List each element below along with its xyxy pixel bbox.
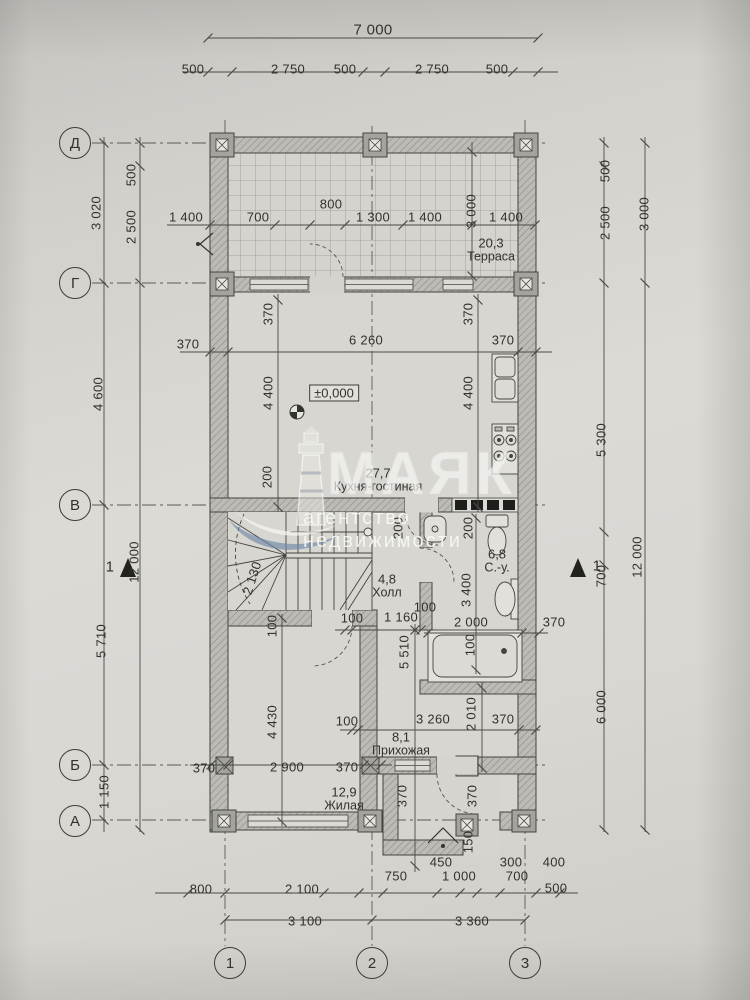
room-name: Жилая — [324, 799, 364, 812]
dim-label: 370 — [461, 303, 476, 326]
dim-label: 6 000 — [594, 690, 609, 724]
room-name: Прихожая — [372, 744, 430, 757]
dim-label: 400 — [543, 855, 566, 870]
floor-plan-photo: 7 0005002 7505002 7505003 0205002 5004 6… — [0, 0, 750, 1000]
dim-label: 370 — [395, 785, 410, 808]
room-area: 20,3 — [467, 237, 515, 251]
dim-label: 100 — [336, 714, 359, 729]
axis-circle-3: 3 — [509, 947, 541, 979]
dim-label: 200 — [260, 466, 275, 489]
axis-circle-А: А — [59, 805, 91, 837]
room-area: 6,8 — [484, 548, 509, 562]
room-label: 20,3Терраса — [467, 237, 515, 264]
dim-label: 3 100 — [288, 914, 322, 929]
axis-circle-Б: Б — [59, 749, 91, 781]
dim-label: 750 — [385, 869, 408, 884]
dim-label: 700 — [247, 210, 270, 225]
dim-label: 100 — [341, 611, 364, 626]
dim-label: 370 — [492, 333, 515, 348]
dim-label: 150 — [461, 831, 476, 854]
dim-label: 2 750 — [271, 62, 305, 77]
dim-label: 370 — [336, 760, 359, 775]
room-area: 8,1 — [372, 731, 430, 745]
room-name: Кухня-гостиная — [334, 480, 422, 493]
dim-label: 370 — [465, 785, 480, 808]
room-label: 6,8С.-у. — [484, 548, 509, 575]
level-mark: ±0,000 — [309, 385, 359, 402]
dim-label: 5 300 — [594, 423, 609, 457]
dim-label: 500 — [334, 62, 357, 77]
dim-label: 1 400 — [489, 210, 523, 225]
room-label: 27,7Кухня-гостиная — [334, 467, 422, 494]
axis-circle-В: В — [59, 489, 91, 521]
dim-label: 2 000 — [454, 615, 488, 630]
dim-label: 700 — [506, 869, 529, 884]
dim-label: 1 300 — [356, 210, 390, 225]
dim-label: 7 000 — [353, 22, 392, 39]
dim-label: 500 — [598, 160, 613, 183]
dim-label: 2 130 — [240, 559, 265, 596]
dim-label: 3 400 — [459, 573, 474, 607]
dim-label: 5 710 — [94, 624, 109, 658]
label-layer: 7 0005002 7505002 7505003 0205002 5004 6… — [0, 0, 750, 1000]
dim-label: 370 — [193, 761, 216, 776]
dim-label: 200 — [391, 517, 406, 540]
room-area: 27,7 — [334, 467, 422, 481]
room-name: Терраса — [467, 250, 515, 263]
room-label: 8,1Прихожая — [372, 731, 430, 758]
dim-label: 6 260 — [349, 333, 383, 348]
dim-label: 3 000 — [464, 194, 479, 228]
dim-label: 800 — [190, 882, 213, 897]
dim-label: 4 400 — [461, 376, 476, 410]
dim-label: 1 400 — [169, 210, 203, 225]
dim-label: 2 900 — [270, 760, 304, 775]
dim-label: 500 — [124, 164, 139, 187]
dim-label: 2 750 — [415, 62, 449, 77]
dim-label: 2 500 — [124, 210, 139, 244]
room-area: 4,8 — [372, 573, 401, 587]
dim-label: 1 000 — [442, 869, 476, 884]
dim-label: 1 160 — [384, 610, 418, 625]
dim-label: 12 000 — [630, 536, 645, 578]
dim-label: 3 020 — [89, 196, 104, 230]
axis-circle-2: 2 — [356, 947, 388, 979]
dim-label: 1 400 — [408, 210, 442, 225]
dim-label: 3 260 — [416, 712, 450, 727]
dim-label: 3 000 — [637, 197, 652, 231]
dim-label: 800 — [320, 197, 343, 212]
dim-label: 370 — [492, 712, 515, 727]
dim-label: 2 010 — [464, 697, 479, 731]
dim-label: 500 — [545, 881, 568, 896]
dim-label: 2 100 — [285, 882, 319, 897]
dim-label: 500 — [486, 62, 509, 77]
dim-label: 3 360 — [455, 914, 489, 929]
dim-label: 100 — [463, 634, 478, 657]
room-name: Холл — [372, 586, 401, 599]
dim-label: 1 150 — [97, 775, 112, 809]
dim-label: 100 — [265, 615, 280, 638]
dim-label: 2 500 — [598, 206, 613, 240]
dim-label: 450 — [430, 855, 453, 870]
axis-circle-Д: Д — [59, 127, 91, 159]
dim-label: 4 600 — [91, 377, 106, 411]
section-mark-label: 1 — [106, 559, 115, 576]
dim-label: 370 — [177, 337, 200, 352]
axis-circle-1: 1 — [214, 947, 246, 979]
dim-label: 200 — [461, 517, 476, 540]
dim-label: 370 — [543, 615, 566, 630]
dim-label: 12 000 — [127, 541, 142, 583]
room-name: С.-у. — [484, 561, 509, 574]
dim-label: 4 430 — [265, 705, 280, 739]
section-mark-label: 1 — [593, 558, 602, 575]
dim-label: 300 — [500, 855, 523, 870]
axis-circle-Г: Г — [59, 267, 91, 299]
dim-label: 4 400 — [261, 376, 276, 410]
dim-label: 5 510 — [397, 635, 412, 669]
room-area: 12,9 — [324, 786, 364, 800]
room-label: 4,8Холл — [372, 573, 401, 600]
dim-label: 500 — [182, 62, 205, 77]
dim-label: 370 — [261, 303, 276, 326]
room-label: 12,9Жилая — [324, 786, 364, 813]
